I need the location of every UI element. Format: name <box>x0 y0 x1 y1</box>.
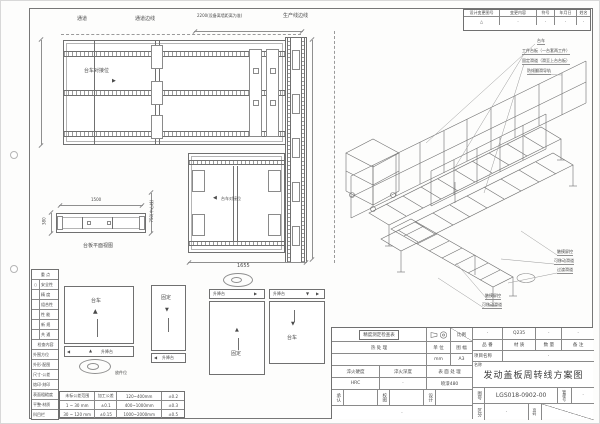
checklist-header: 检查内容 <box>37 342 54 348</box>
class-label: 区分 <box>476 408 481 417</box>
callout-touch-panel: 触摸屏控 <box>557 249 573 256</box>
revision-value: △ <box>464 17 500 25</box>
arrow-right-icon: ▶ <box>316 292 319 296</box>
check-mark <box>32 310 40 319</box>
tolerance-cell: ±0.1 <box>95 401 117 410</box>
callout-anti-tip-rail: 防倾翻滑导轨 <box>527 68 551 75</box>
approve-signature <box>344 390 378 406</box>
quench-hardness-value: HRC <box>332 378 380 390</box>
title-block: 精度测定检查表 比例 热 处 理 单 位 图 幅 mm A3 <box>331 327 593 419</box>
quench-depth-value: · <box>380 378 427 390</box>
dock-label: 台车对接位 <box>221 197 241 201</box>
class-value: · <box>485 404 529 420</box>
aisle-edge-line <box>61 34 301 35</box>
dim-line-left <box>41 40 42 145</box>
callout-workpiece-plate: 工件台板（一台套两工件） <box>522 48 570 55</box>
qty-label: 数 量 <box>536 340 562 351</box>
tolerance-cell: 1000~2000mm <box>117 410 162 418</box>
roller-strip <box>189 160 284 165</box>
check-label: 校图 <box>381 393 386 402</box>
plan-view-vertical-conveyor <box>285 37 307 263</box>
dim-line-right <box>312 40 313 259</box>
arrow-down-icon: ▼ <box>291 322 295 328</box>
prod-edge-label: 生产线边线 <box>283 14 308 20</box>
tolerance-cell: ±0.5 <box>162 410 184 418</box>
tolerance-cell: ±0.2 <box>162 392 184 401</box>
tolerance-cell: 未标公差范围 <box>60 392 95 401</box>
revision-table: 设计变更图号 变更内容 符号 年月日 姓名 △ · · · · <box>463 9 591 31</box>
mgmt-no-value: · <box>572 388 594 404</box>
checklist-item: 安全性 <box>40 282 53 288</box>
punch-hole <box>10 265 18 273</box>
revision-header: 年月日 <box>555 10 577 17</box>
flow-label: 台车 <box>287 336 297 342</box>
checklist-item: 共 通 <box>40 332 50 338</box>
page-label: 页码 <box>533 408 537 416</box>
flow-strip-lift: 升降台 ▼ ▶ <box>269 289 325 299</box>
checklist-item: 精 度 <box>40 292 50 298</box>
callout-touch-panel: 触摸屏控 <box>485 293 501 300</box>
tolerance-cell: 加工公差 <box>95 392 117 401</box>
checklist-header: 重 点 <box>40 272 50 278</box>
projection-symbol-icon <box>429 330 449 340</box>
tolerance-cell: 1 ~ 30 mm <box>60 401 95 410</box>
checklist-item: 外形·配图 <box>32 362 50 368</box>
revision-value: · <box>555 17 577 25</box>
part-no-value: · <box>473 328 503 340</box>
surface-treat-value: 喷漆480 <box>427 378 472 390</box>
design-label: 设计 <box>427 393 432 402</box>
dim-line-380 <box>51 213 52 233</box>
arrow-right-icon: ▶ <box>254 292 257 296</box>
qty-value: · <box>536 328 562 340</box>
dim-750: 750(中心线) <box>150 200 154 223</box>
tolerance-cell: 400~1000mm <box>117 401 162 410</box>
checklist-item: 科目栏 <box>32 412 45 418</box>
material-value: Q235 <box>503 328 537 340</box>
prod-edge-line <box>334 31 335 263</box>
mgmt-no-label: 管理号 <box>563 390 567 401</box>
revision-header: 符号 <box>537 10 555 17</box>
flow-strip-lift: ◀ 升降台 <box>151 353 186 363</box>
flow-label: 升降台 <box>162 356 174 360</box>
surface-treat-label: 表 面 处 理 <box>427 366 472 378</box>
roller-strip-vertical <box>301 38 305 262</box>
sheet-size-label: 图 幅 <box>451 342 472 354</box>
check-mark: ○ <box>32 280 40 289</box>
plan-view-top: 台车对接位 ▶ <box>63 40 286 145</box>
checklist-item: 尺寸·公差 <box>32 372 50 378</box>
dim-line-2200 <box>194 31 303 32</box>
project-label: 项目名称 <box>473 351 503 362</box>
dim-2200: 2200(设备离墙距离为准) <box>197 14 242 18</box>
operator-position-inner <box>231 277 242 283</box>
footer-cell: · <box>332 406 472 420</box>
dwg-no: LGS018-0902-00 <box>485 388 558 404</box>
pick-position-label: 放件位 <box>115 371 127 375</box>
flow-box-fixed: 固定 ▼ <box>151 285 186 351</box>
drawing-title: 发动盖板周转线方案图 <box>483 368 583 381</box>
callout-movable-slide: 可移动滑道 <box>482 302 502 309</box>
checklist-item: 外围方位 <box>32 352 49 358</box>
arrow-right-icon: ▶ <box>112 79 116 85</box>
material-label: 材 质 <box>503 340 537 351</box>
scale-cell: 比例 <box>451 328 472 342</box>
arrow-up-icon: ▲ <box>93 309 98 316</box>
tolerance-table: 未标公差范围 加工公差 120~400mm ±0.2 1 ~ 30 mm ±0.… <box>59 391 185 418</box>
iso-view <box>336 31 593 331</box>
punch-hole <box>10 151 18 159</box>
project-value: · <box>503 351 594 362</box>
arrow-left-icon: ◀ <box>213 196 217 202</box>
checklist-item: 表面粗糙度 <box>32 392 53 398</box>
dwg-no-label: 图号 <box>476 391 481 400</box>
remark-value: · <box>562 328 594 340</box>
unit-label: 单 位 <box>427 342 451 354</box>
dim-1655: 1655 <box>237 264 250 270</box>
flow-label: 固定 <box>161 296 171 302</box>
aisle-edge-label: 通道边线 <box>135 17 155 23</box>
dim-380: 380 <box>43 217 47 225</box>
tolerance-cell: 30 ~ 120 mm <box>60 410 95 418</box>
check-mark <box>32 300 40 309</box>
callout-trolley: 台车 <box>537 38 545 45</box>
aisle-label: 通道 <box>77 17 87 23</box>
sheet-size-value: A3 <box>451 354 472 366</box>
quench-hardness-label: 淬火硬度 <box>332 366 380 378</box>
checklist-item: 组合性 <box>40 302 53 308</box>
tolerance-cell: 120~400mm <box>117 392 162 401</box>
flow-strip-lift: ◀ ▲ 升降台 <box>64 346 134 357</box>
name-label: 名称 <box>474 363 482 367</box>
dock-label: 台车对接位 <box>84 69 109 75</box>
callout-fixed-slide: 固定滑道（滑至上台台板） <box>522 58 570 65</box>
arrow-left-icon: ◀ <box>154 356 157 360</box>
checklist-item: 新 规 <box>40 322 50 328</box>
arrow-down-icon: ▼ <box>306 292 309 296</box>
check-mark <box>32 290 40 299</box>
approve-label: 承认 <box>335 393 340 402</box>
revision-header: 变更内容 <box>500 10 537 17</box>
quench-depth-label: 淬火深度 <box>380 366 427 378</box>
side-view-platform <box>56 213 146 233</box>
part-no-label: 品 番 <box>473 340 503 351</box>
unit-value: mm <box>427 354 451 366</box>
operator-position-inner <box>87 363 99 370</box>
callout-transition-slide: 过渡滑道 <box>557 267 573 274</box>
revision-value: · <box>577 17 590 25</box>
tolerance-cell: ±0.3 <box>162 401 184 410</box>
page-cell <box>542 404 594 420</box>
checklist-item: 烙印·刻印 <box>32 382 50 388</box>
check-table-label: 精度测定检查表 <box>359 330 399 340</box>
arrow-down-icon: ▼ <box>165 308 169 314</box>
revision-header: 姓名 <box>577 10 590 17</box>
checklist-item: 平整·材质 <box>32 402 50 408</box>
check-mark <box>32 320 40 329</box>
arrow-left-icon: ◀ <box>67 350 70 354</box>
checklist-table: 重 点 ○安全性 精 度 组合性 性 能 新 规 共 通 检查内容 外围方位 外… <box>31 269 59 420</box>
roller-strip <box>189 241 284 246</box>
check-signature <box>390 390 424 406</box>
arrow-up-icon: ▲ <box>235 328 239 334</box>
dim-line-1500 <box>59 205 143 206</box>
flow-label: 升降台 <box>273 292 285 296</box>
revision-header: 设计变更图号 <box>464 10 500 17</box>
revision-value: · <box>500 17 537 25</box>
checklist-item: 性 能 <box>40 312 50 318</box>
revision-value: · <box>537 17 555 25</box>
drawing-sheet: 设计变更图号 变更内容 符号 年月日 姓名 △ · · · · 通道 通道边线 … <box>0 0 600 424</box>
roller-strip-vertical <box>287 38 291 262</box>
tolerance-cell: ±0.15 <box>95 410 117 418</box>
remark-label: 备 注 <box>562 340 594 351</box>
flow-label: 台车 <box>91 299 101 305</box>
flow-box-fixed: ▲ 固定 <box>209 301 265 375</box>
side-view-caption: 台板平面视图 <box>83 244 113 250</box>
flow-strip-lift: 升降台 ▶ <box>209 289 265 299</box>
flow-label: 升降台 <box>213 292 225 296</box>
heat-treat-label: 热 处 理 <box>332 342 427 354</box>
flow-box-trolley: 台车 ▲ <box>64 286 134 344</box>
check-mark <box>32 330 40 339</box>
design-signature <box>436 390 472 406</box>
arrow-up-icon: ▲ <box>89 349 92 353</box>
flow-label: 固定 <box>231 352 241 358</box>
callout-movable-slide: 可移动滑道 <box>554 258 574 265</box>
plan-view-middle: ◀ 台车对接位 <box>188 153 285 253</box>
flow-label: 升降台 <box>101 350 113 354</box>
dim-1500: 1500 <box>91 198 101 202</box>
flow-box-trolley: ▼ 台车 <box>269 301 325 364</box>
